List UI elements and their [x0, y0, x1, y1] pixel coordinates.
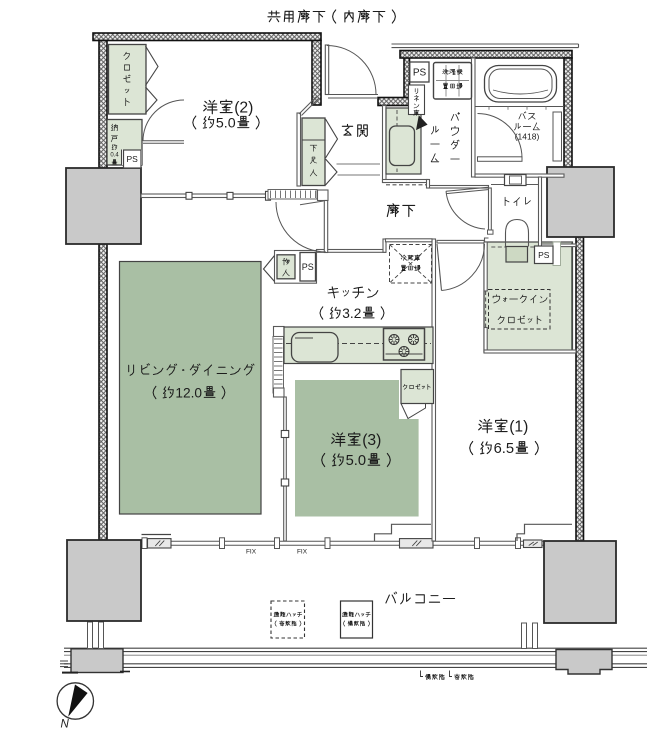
svg-text:12.0: 12.0 — [175, 385, 202, 400]
svg-text:3.2: 3.2 — [342, 306, 361, 321]
svg-text:PS: PS — [302, 262, 314, 272]
svg-text:PS: PS — [413, 68, 427, 79]
svg-text:N: N — [61, 719, 70, 730]
svg-text:PS: PS — [538, 250, 550, 260]
svg-text:5.0: 5.0 — [346, 453, 366, 469]
svg-text:6.5: 6.5 — [494, 441, 514, 457]
svg-text:0.4: 0.4 — [110, 153, 119, 159]
svg-text:(1): (1) — [509, 418, 528, 435]
svg-text:FIX: FIX — [246, 549, 257, 556]
svg-text:FIX: FIX — [297, 549, 308, 556]
svg-text:5.0: 5.0 — [216, 115, 236, 131]
svg-text:(1418): (1418) — [515, 132, 540, 142]
svg-text:(2): (2) — [234, 99, 253, 116]
svg-text:PS: PS — [127, 154, 139, 164]
svg-text:(3): (3) — [362, 432, 381, 449]
